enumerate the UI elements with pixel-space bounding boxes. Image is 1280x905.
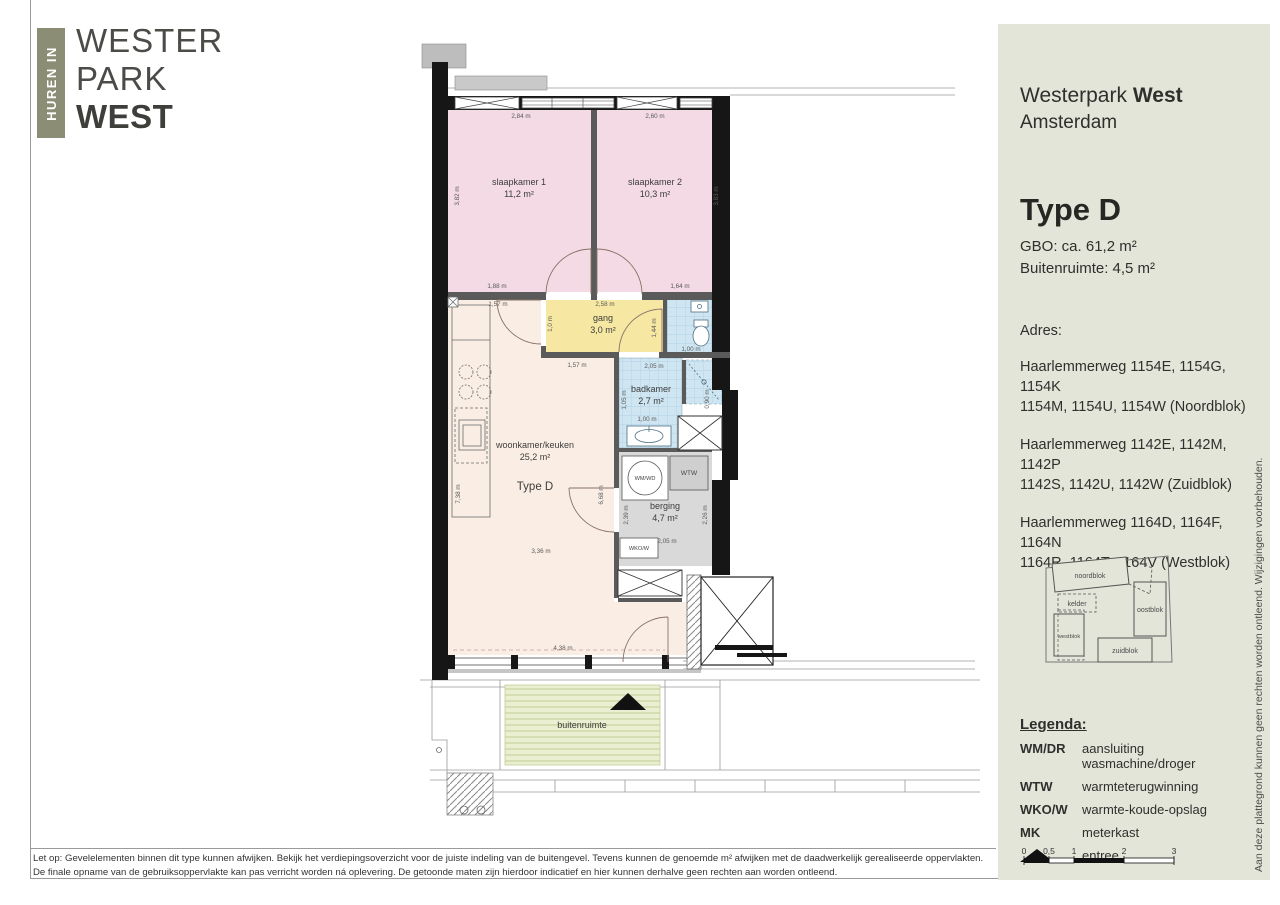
dim-105: 1,05 m <box>621 390 628 409</box>
wtw-label: WTW <box>681 470 698 477</box>
area-slaapkamer2: 10,3 m² <box>640 189 671 199</box>
legend-key-mk: MK <box>1020 825 1082 840</box>
legend-row-mk: MK meterkast <box>1020 825 1250 840</box>
area-berging: 4,7 m² <box>652 513 678 523</box>
logo-word-1: WESTER <box>76 22 223 60</box>
label-woonkamer: woonkamer/keuken <box>495 440 574 450</box>
legend-label-wkow: warmte-koude-opslag <box>1082 802 1207 817</box>
dim-205g: 2,05 m <box>657 538 676 545</box>
frame-line-above-footer <box>30 848 996 849</box>
scale-tick-3: 3 <box>1172 846 1177 856</box>
legend-label-wtw: warmteterugwinning <box>1082 779 1198 794</box>
label-type-d: Type D <box>517 481 553 493</box>
label-badkamer: badkamer <box>631 384 671 394</box>
area-gang: 3,0 m² <box>590 325 616 335</box>
project-title-regular: Westerpark <box>1020 84 1133 107</box>
legend: Legenda: WM/DR aansluiting wasmachine/dr… <box>1020 716 1250 863</box>
dim-226: 2,26 m <box>702 505 709 524</box>
legend-key-wtw: WTW <box>1020 779 1082 794</box>
sitemap-kelder: kelder <box>1067 601 1087 608</box>
dim-668: 6,68 m <box>598 485 605 504</box>
scale-tick-05: 0,5 <box>1043 846 1055 856</box>
elevator-shaft <box>687 575 787 669</box>
floorplan: WM/WD WTW WKO/W slaapkamer 1 11,2 m² sla… <box>415 28 990 848</box>
sitemap-westblok: westblok <box>1057 634 1081 640</box>
dim-100b: 1,00 m <box>637 416 656 423</box>
legend-label-mk: meterkast <box>1082 825 1139 840</box>
wkow-label: WKO/W <box>629 546 650 552</box>
address-noord-line2: 1154M, 1154U, 1154W (Noordblok) <box>1020 397 1256 417</box>
scale-bar: 0 0,5 1 2 3 <box>1020 846 1190 875</box>
project-title: Westerpark West <box>1020 84 1256 108</box>
upper-balcony-edge <box>455 76 547 90</box>
dim-258: 2,58 m <box>595 301 614 308</box>
dim-157a: 1,57 m <box>488 301 507 308</box>
concrete-detail <box>437 748 494 816</box>
scale-tick-1: 1 <box>1072 846 1077 856</box>
dim-157b: 1,57 m <box>567 362 586 369</box>
room-slaapkamer1 <box>448 110 591 292</box>
sitemap-noordblok: noordblok <box>1075 573 1106 580</box>
dim-10: 1,0 m <box>547 316 554 332</box>
address-zuid-line1: Haarlemmerweg 1142E, 1142M, 1142P <box>1020 435 1256 475</box>
address-block-zuid: Haarlemmerweg 1142E, 1142M, 1142P 1142S,… <box>1020 435 1256 495</box>
sitemap-zuidblok: zuidblok <box>1112 648 1138 655</box>
dim-336: 3,36 m <box>531 548 550 555</box>
label-slaapkamer2: slaapkamer 2 <box>628 177 682 187</box>
dim-438: 4,38 m <box>553 645 572 652</box>
kitchen-counter <box>448 297 491 517</box>
floorplan-svg: WM/WD WTW WKO/W slaapkamer 1 11,2 m² sla… <box>415 28 990 843</box>
project-city: Amsterdam <box>1020 112 1256 134</box>
dim-382: 3,82 m <box>454 186 461 205</box>
logo-word-2: PARK <box>76 60 223 98</box>
room-slaapkamer2 <box>597 110 712 292</box>
sitemap-oostblok: oostblok <box>1137 607 1164 614</box>
footer-line-1: Let op: Gevelelementen binnen dit type k… <box>33 852 993 866</box>
footer-disclaimer: Let op: Gevelelementen binnen dit type k… <box>33 852 993 879</box>
wmwd-label: WM/WD <box>635 476 656 482</box>
label-berging: berging <box>650 501 680 511</box>
legend-row-wmdr: WM/DR aansluiting wasmachine/droger <box>1020 741 1250 771</box>
dim-144: 1,44 m <box>651 318 658 337</box>
address-zuid-line2: 1142S, 1142U, 1142W (Zuidblok) <box>1020 475 1256 495</box>
side-note: Aan deze plattegrond kunnen geen rechten… <box>1253 524 1265 872</box>
dim-090: 0,90 m <box>704 389 711 408</box>
type-title: Type D <box>1020 192 1256 228</box>
legend-key-wkow: WKO/W <box>1020 802 1082 817</box>
info-sidebar: Westerpark West Amsterdam Type D GBO: ca… <box>998 24 1270 880</box>
legend-label-wmdr: aansluiting wasmachine/droger <box>1082 741 1250 771</box>
area-slaapkamer1: 11,2 m² <box>504 189 534 199</box>
buitenruimte-value: Buitenruimte: 4,5 m² <box>1020 260 1256 277</box>
legend-key-wmdr: WM/DR <box>1020 741 1082 771</box>
logo-olive-bar: HUREN IN <box>37 28 65 138</box>
frame-line-left <box>30 0 31 878</box>
dim-738: 7,38 m <box>455 484 462 503</box>
legend-row-wtw: WTW warmteterugwinning <box>1020 779 1250 794</box>
shaft-box <box>678 416 722 450</box>
address-noord-line1: Haarlemmerweg 1154E, 1154G, 1154K <box>1020 357 1256 397</box>
top-windows <box>455 97 712 109</box>
logo-wordmark: WESTER PARK WEST <box>76 22 223 138</box>
area-badkamer: 2,7 m² <box>638 396 664 406</box>
label-slaapkamer1: slaapkamer 1 <box>492 177 546 187</box>
footer-line-2: De finale opname van de gebruiksoppervla… <box>33 866 993 880</box>
gbo-value: GBO: ca. 61,2 m² <box>1020 238 1256 255</box>
brand-logo: HUREN IN WESTER PARK WEST <box>37 28 223 138</box>
dim-188: 1,88 m <box>487 283 506 290</box>
label-gang: gang <box>593 313 613 323</box>
dim-383: 3,83 m <box>713 186 720 205</box>
project-title-bold: West <box>1133 84 1183 107</box>
legend-title: Legenda: <box>1020 716 1250 733</box>
dim-100t: 1,00 m <box>681 346 700 353</box>
scale-tick-0: 0 <box>1022 846 1027 856</box>
scale-tick-2: 2 <box>1122 846 1127 856</box>
address-west-line1: Haarlemmerweg 1164D, 1164F, 1164N <box>1020 513 1256 553</box>
address-block-noord: Haarlemmerweg 1154E, 1154G, 1154K 1154M,… <box>1020 357 1256 417</box>
area-woonkamer: 25,2 m² <box>520 452 551 462</box>
dim-164: 1,64 m <box>670 283 689 290</box>
toilet-fixtures <box>691 301 709 346</box>
logo-word-3: WEST <box>76 98 223 136</box>
dim-205b: 2,05 m <box>644 363 663 370</box>
dim-260: 2,60 m <box>645 113 664 120</box>
legend-row-wkow: WKO/W warmte-koude-opslag <box>1020 802 1250 817</box>
dim-239: 2,39 m <box>623 505 630 524</box>
site-map: noordblok kelder oostblok westblok zuidb… <box>1040 552 1200 683</box>
logo-tab-text: HUREN IN <box>44 46 59 121</box>
dim-284: 2,84 m <box>511 113 530 120</box>
adres-label: Adres: <box>1020 323 1256 339</box>
label-buitenruimte: buitenruimte <box>557 720 607 730</box>
